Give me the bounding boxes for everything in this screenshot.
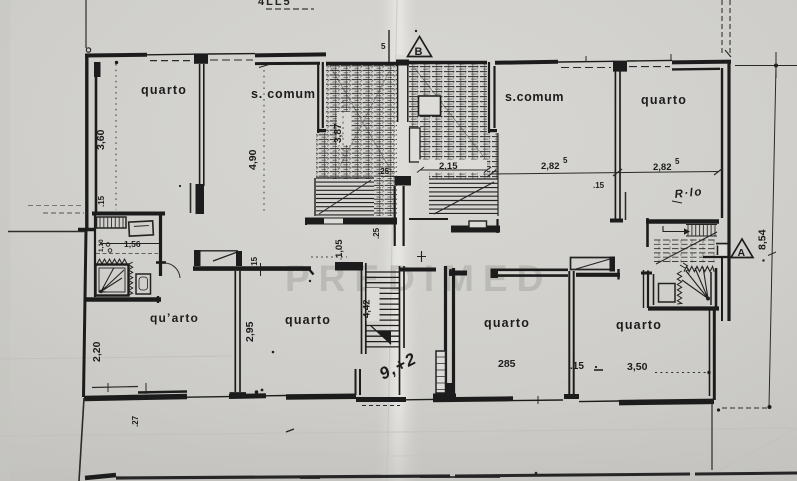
svg-text:s.comum: s.comum	[505, 90, 564, 104]
svg-text:quarto: quarto	[641, 93, 687, 107]
svg-text:4LL5: 4LL5	[258, 0, 292, 8]
svg-text:A: A	[738, 247, 746, 259]
svg-text:.15: .15	[593, 181, 605, 190]
svg-text:quarto: quarto	[285, 313, 331, 327]
svg-text:4,90: 4,90	[247, 149, 259, 170]
svg-text:5: 5	[381, 42, 386, 51]
svg-text:1,05: 1,05	[334, 239, 345, 258]
svg-text:1,10: 1,10	[98, 239, 105, 252]
svg-text:3,60: 3,60	[95, 129, 107, 150]
svg-text:2,95: 2,95	[244, 321, 256, 342]
svg-text:.15: .15	[570, 361, 584, 372]
svg-text:.27: .27	[131, 415, 140, 427]
svg-text:2,82: 2,82	[541, 161, 560, 172]
svg-text:5: 5	[563, 156, 568, 165]
svg-text:2,20: 2,20	[91, 341, 103, 362]
svg-text:quarto: quarto	[484, 316, 530, 330]
svg-text:1,56: 1,56	[124, 239, 141, 249]
svg-text:5: 5	[675, 157, 680, 166]
svg-text:.25: .25	[378, 167, 390, 176]
svg-text:4,42: 4,42	[362, 300, 373, 319]
svg-text:quarto: quarto	[141, 83, 187, 97]
svg-text:8,54: 8,54	[757, 229, 769, 250]
svg-text:s. comum: s. comum	[251, 87, 316, 101]
svg-text:.15: .15	[250, 256, 259, 268]
svg-text:qu’arto: qu’arto	[150, 311, 199, 325]
svg-text:.15: .15	[97, 195, 106, 207]
svg-text:2,82: 2,82	[653, 162, 672, 173]
svg-text:3,87: 3,87	[333, 123, 344, 143]
svg-text:quarto: quarto	[616, 318, 662, 332]
svg-text:3,50: 3,50	[627, 361, 648, 373]
svg-text:285: 285	[498, 358, 516, 370]
svg-text:.25: .25	[372, 227, 381, 239]
svg-text:PREDIMED: PREDIMED	[285, 258, 552, 299]
svg-text:B: B	[415, 46, 423, 58]
svg-text:2,15: 2,15	[439, 161, 458, 172]
